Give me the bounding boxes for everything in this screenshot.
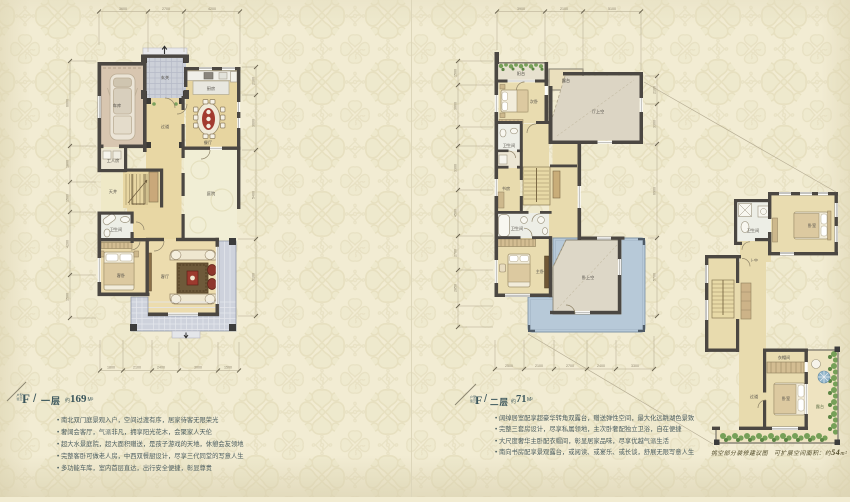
svg-text:厨房: 厨房 — [207, 85, 215, 92]
svg-text:2500: 2500 — [505, 364, 513, 368]
svg-text:1500: 1500 — [224, 366, 232, 370]
svg-text:3600: 3600 — [119, 7, 127, 11]
svg-text:1800: 1800 — [66, 160, 70, 168]
svg-text:2100: 2100 — [252, 77, 256, 85]
svg-text:露台: 露台 — [562, 77, 570, 84]
svg-text:过道: 过道 — [161, 123, 170, 130]
svg-text:4500: 4500 — [454, 209, 458, 217]
svg-text:3600: 3600 — [252, 119, 256, 127]
svg-text:庭院: 庭院 — [207, 190, 216, 197]
svg-text:2400: 2400 — [157, 366, 165, 370]
svg-text:玄关: 玄关 — [161, 74, 169, 81]
svg-text:露台: 露台 — [816, 403, 824, 410]
svg-text:5100: 5100 — [252, 273, 256, 281]
svg-text:2100: 2100 — [653, 86, 657, 94]
svg-text:3900: 3900 — [517, 7, 525, 11]
svg-text:车库: 车库 — [113, 102, 121, 109]
svg-text:书房: 书房 — [502, 185, 510, 192]
svg-text:6900: 6900 — [653, 187, 657, 195]
svg-text:卧上空: 卧上空 — [582, 274, 595, 281]
svg-text:2700: 2700 — [454, 249, 458, 257]
svg-text:1800: 1800 — [107, 366, 115, 370]
svg-text:过道: 过道 — [750, 393, 759, 400]
svg-text:主卧: 主卧 — [536, 268, 544, 275]
svg-text:工人房: 工人房 — [107, 157, 120, 164]
svg-text:2700: 2700 — [566, 364, 574, 368]
svg-text:2400: 2400 — [597, 364, 605, 368]
svg-text:2850: 2850 — [454, 284, 458, 292]
svg-text:卧室: 卧室 — [808, 222, 816, 229]
svg-text:6000: 6000 — [66, 99, 70, 107]
svg-text:1500: 1500 — [66, 293, 70, 301]
svg-text:2100: 2100 — [535, 364, 543, 368]
svg-text:卫生间: 卫生间 — [503, 142, 516, 149]
svg-text:5100: 5100 — [608, 7, 616, 11]
svg-text:5700: 5700 — [653, 273, 657, 281]
svg-text:次卧: 次卧 — [530, 98, 538, 105]
svg-text:3300: 3300 — [631, 364, 639, 368]
svg-text:客卧: 客卧 — [117, 272, 125, 279]
svg-text:1500: 1500 — [66, 194, 70, 202]
svg-text:衣帽间: 衣帽间 — [778, 354, 791, 361]
svg-text:卫生间: 卫生间 — [110, 226, 123, 233]
svg-text:5400: 5400 — [252, 191, 256, 199]
svg-text:3300: 3300 — [653, 120, 657, 128]
svg-text:卧室: 卧室 — [782, 395, 790, 402]
svg-text:天井: 天井 — [109, 188, 117, 195]
svg-text:卫生间: 卫生间 — [747, 227, 760, 234]
svg-text:3000: 3000 — [194, 366, 202, 370]
svg-text:1500: 1500 — [454, 69, 458, 77]
svg-text:阳台: 阳台 — [517, 70, 525, 77]
svg-text:客厅: 客厅 — [161, 273, 169, 280]
svg-text:卫生间: 卫生间 — [511, 225, 524, 232]
svg-text:2100: 2100 — [133, 366, 141, 370]
svg-text:4200: 4200 — [66, 240, 70, 248]
svg-text:3000: 3000 — [454, 102, 458, 110]
svg-text:2100: 2100 — [560, 7, 568, 11]
svg-text:餐厅: 餐厅 — [204, 139, 212, 146]
svg-text:4200: 4200 — [208, 7, 216, 11]
svg-text:3300: 3300 — [454, 164, 458, 172]
svg-text:厅上空: 厅上空 — [592, 108, 605, 114]
svg-text:2700: 2700 — [162, 7, 170, 11]
